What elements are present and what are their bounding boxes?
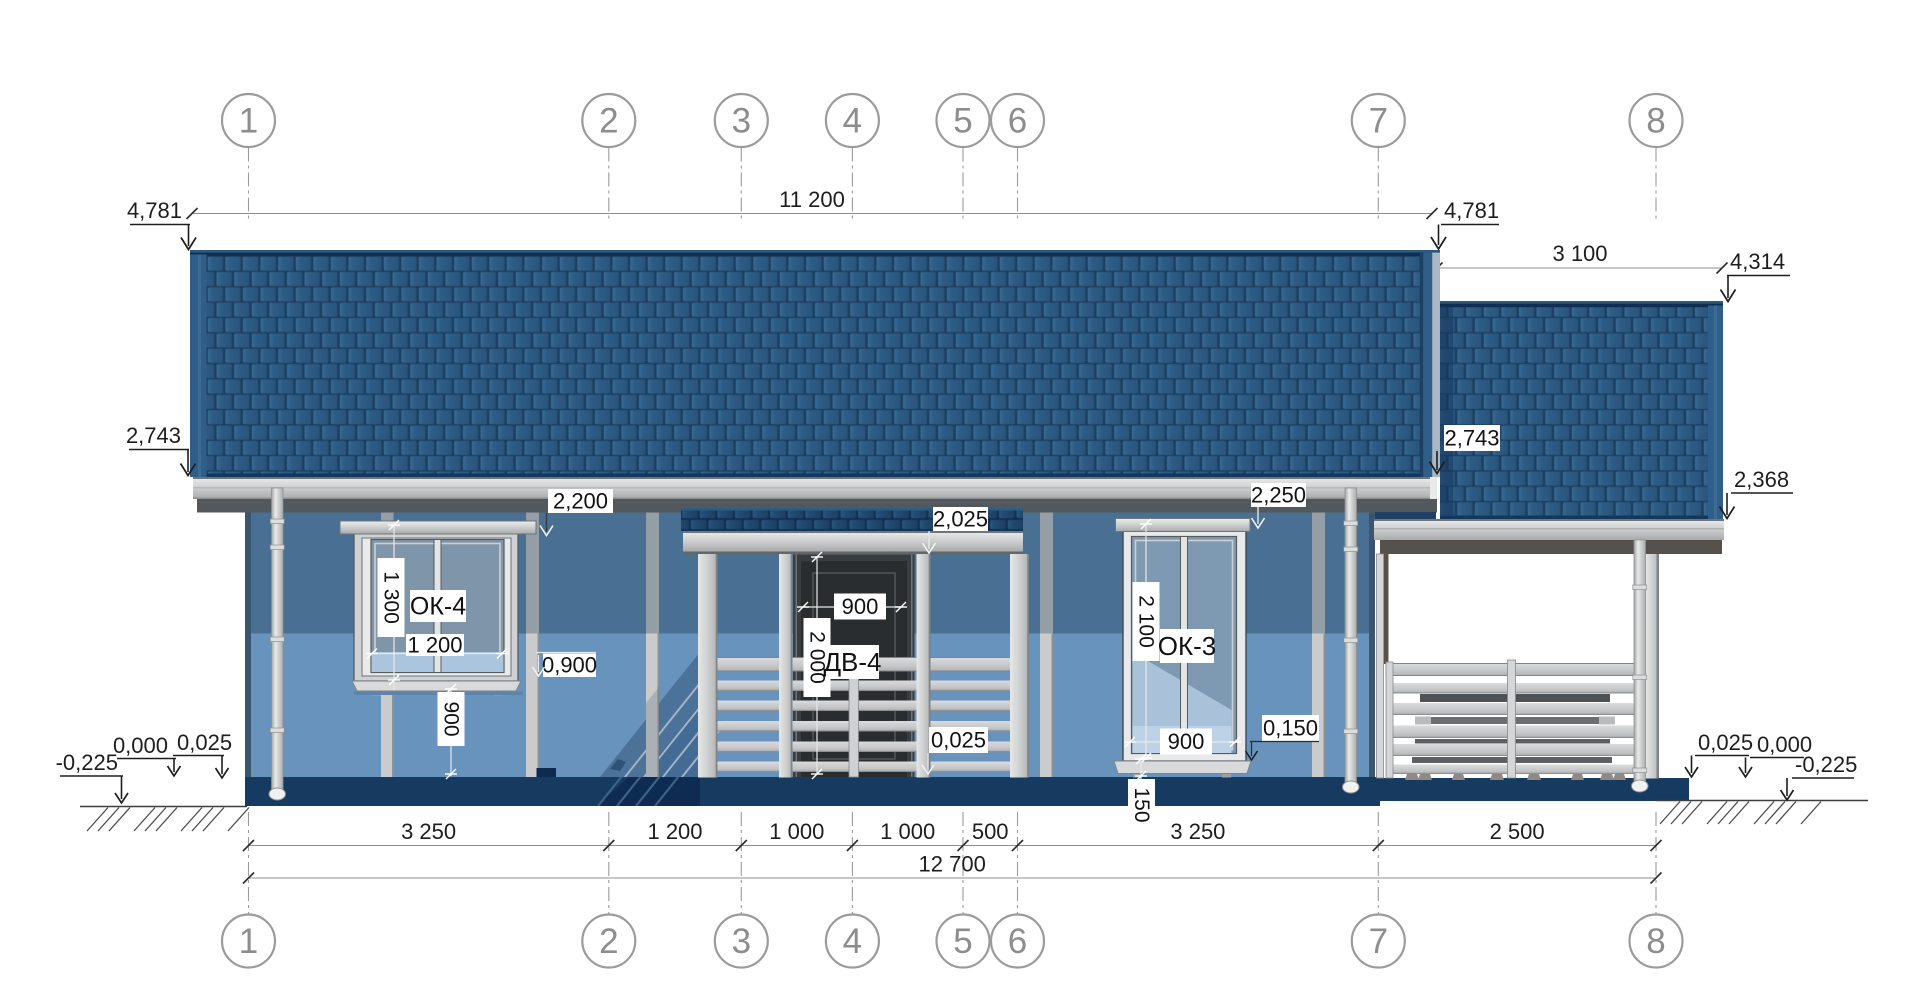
svg-text:2,368: 2,368 — [1734, 467, 1789, 492]
svg-text:1 200: 1 200 — [407, 632, 462, 657]
svg-text:0,000: 0,000 — [113, 733, 168, 758]
svg-text:3 100: 3 100 — [1552, 241, 1607, 266]
svg-text:0,025: 0,025 — [177, 730, 232, 755]
svg-text:7: 7 — [1369, 102, 1388, 141]
svg-text:4,781: 4,781 — [1444, 198, 1499, 223]
svg-text:1 000: 1 000 — [880, 819, 935, 844]
svg-text:3 250: 3 250 — [1170, 819, 1225, 844]
svg-text:8: 8 — [1646, 102, 1665, 141]
svg-text:2: 2 — [599, 922, 618, 961]
svg-text:2,250: 2,250 — [1251, 482, 1306, 507]
svg-text:1: 1 — [239, 922, 258, 961]
svg-text:0,150: 0,150 — [1263, 715, 1318, 740]
svg-text:1: 1 — [239, 102, 258, 141]
svg-text:12 700: 12 700 — [919, 852, 986, 877]
svg-text:3: 3 — [732, 102, 751, 141]
svg-text:-0,225: -0,225 — [1795, 752, 1857, 777]
svg-text:2: 2 — [599, 102, 618, 141]
svg-text:11 200: 11 200 — [779, 187, 845, 212]
svg-text:4,781: 4,781 — [127, 198, 182, 223]
svg-text:6: 6 — [1008, 102, 1027, 141]
svg-text:ДВ-4: ДВ-4 — [823, 647, 881, 677]
svg-text:2 100: 2 100 — [1135, 595, 1158, 648]
svg-text:8: 8 — [1646, 922, 1665, 961]
svg-text:2,743: 2,743 — [126, 423, 181, 448]
svg-text:7: 7 — [1369, 922, 1388, 961]
svg-text:2,743: 2,743 — [1444, 425, 1499, 450]
svg-text:3 250: 3 250 — [401, 819, 456, 844]
svg-text:ОК-4: ОК-4 — [410, 593, 466, 621]
svg-text:ОК-3: ОК-3 — [1158, 631, 1217, 661]
svg-text:6: 6 — [1008, 922, 1027, 961]
svg-text:4: 4 — [843, 102, 862, 141]
svg-text:900: 900 — [440, 701, 463, 736]
svg-text:900: 900 — [842, 594, 879, 619]
svg-text:4,314: 4,314 — [1730, 249, 1785, 274]
svg-text:2 500: 2 500 — [1490, 819, 1545, 844]
svg-text:5: 5 — [953, 922, 972, 961]
svg-text:150: 150 — [1130, 787, 1153, 822]
svg-text:900: 900 — [1168, 729, 1205, 754]
svg-text:3: 3 — [732, 922, 751, 961]
svg-text:1 200: 1 200 — [647, 819, 702, 844]
svg-text:0,900: 0,900 — [542, 653, 597, 678]
svg-text:1 300: 1 300 — [380, 571, 403, 624]
svg-text:5: 5 — [953, 102, 972, 141]
svg-text:4: 4 — [843, 922, 862, 961]
svg-text:500: 500 — [972, 819, 1009, 844]
svg-text:2,200: 2,200 — [553, 488, 608, 513]
svg-text:0,025: 0,025 — [931, 727, 986, 752]
svg-text:-0,225: -0,225 — [56, 750, 118, 775]
svg-text:1 000: 1 000 — [769, 819, 824, 844]
svg-text:0,025: 0,025 — [1698, 730, 1753, 755]
svg-text:2,025: 2,025 — [933, 506, 988, 531]
